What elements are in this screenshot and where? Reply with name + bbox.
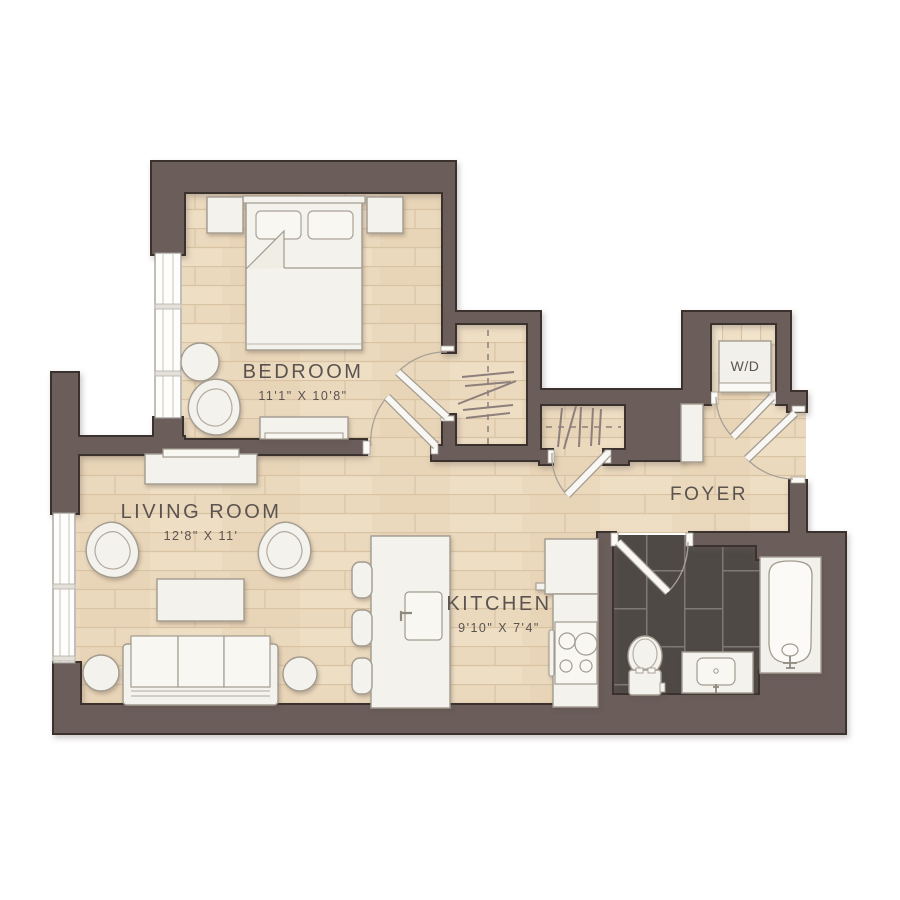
bedroom-bench xyxy=(260,417,348,439)
washer-dryer-label: W/D xyxy=(731,358,760,374)
foyer-cabinet xyxy=(681,404,703,462)
stove xyxy=(555,622,597,684)
nightstand-right xyxy=(367,197,403,233)
sofa xyxy=(123,636,278,705)
living-room-dims: 12'8" X 11' xyxy=(164,529,239,543)
vanity-sink xyxy=(697,658,735,685)
bar-stool xyxy=(352,658,372,694)
kitchen-counter xyxy=(549,594,598,707)
living-room-window xyxy=(53,513,75,663)
refrigerator xyxy=(536,539,598,594)
bathroom-vanity xyxy=(682,652,753,693)
living-room-label: LIVING ROOM xyxy=(121,501,282,523)
coffee-table xyxy=(157,579,244,621)
bedroom-window xyxy=(155,253,181,418)
bar-stool xyxy=(352,562,372,598)
bar-stool xyxy=(352,610,372,646)
floor-plan-svg: BEDROOM 11'1" X 10'8" LIVING ROOM 12'8" … xyxy=(0,0,900,900)
media-console xyxy=(145,449,257,484)
bed xyxy=(243,196,365,350)
bathtub xyxy=(760,557,821,673)
bedroom-dims: 11'1" X 10'8" xyxy=(258,389,347,403)
side-table-left xyxy=(83,655,119,691)
side-table-right xyxy=(283,657,317,691)
toilet xyxy=(628,636,665,695)
island-sink xyxy=(405,592,442,640)
foyer-label: FOYER xyxy=(670,484,748,505)
nightstand-left xyxy=(207,197,243,233)
bedroom-side-table xyxy=(181,343,219,381)
kitchen-island xyxy=(371,536,450,708)
oven-handle xyxy=(549,630,554,676)
bedroom-label: BEDROOM xyxy=(243,361,364,383)
kitchen-label: KITCHEN xyxy=(446,593,551,615)
floor-plan-canvas: BEDROOM 11'1" X 10'8" LIVING ROOM 12'8" … xyxy=(0,0,900,900)
kitchen-dims: 9'10" X 7'4" xyxy=(458,621,540,635)
